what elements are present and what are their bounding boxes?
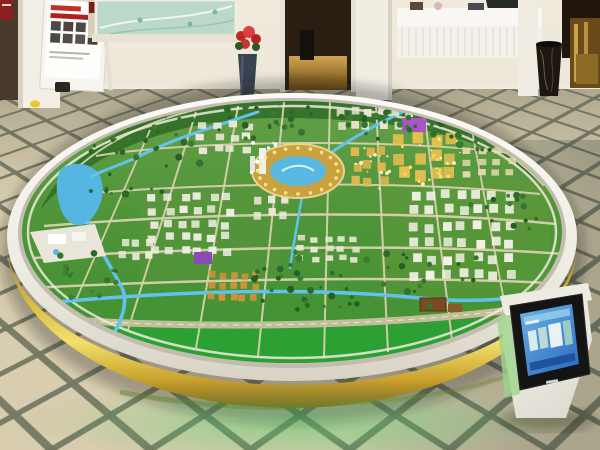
model-light bbox=[250, 171, 253, 174]
model-building bbox=[351, 121, 359, 129]
door-frame bbox=[351, 0, 356, 92]
model-building bbox=[219, 294, 226, 301]
model-tree bbox=[62, 270, 68, 276]
model-building bbox=[279, 212, 286, 220]
model-building bbox=[211, 194, 219, 201]
model-building bbox=[351, 147, 359, 156]
model-tree bbox=[63, 264, 69, 270]
stadium-light bbox=[320, 188, 324, 192]
stadium-light bbox=[334, 176, 338, 180]
model-building bbox=[442, 270, 451, 279]
model-light bbox=[374, 154, 377, 157]
model-tree bbox=[262, 267, 267, 272]
floor-object-dark bbox=[55, 82, 70, 92]
model-tree bbox=[373, 113, 379, 119]
model-tree bbox=[513, 126, 519, 132]
model-building bbox=[132, 253, 139, 260]
model-tree bbox=[430, 122, 434, 126]
model-tree bbox=[457, 262, 461, 266]
model-tree bbox=[348, 302, 352, 306]
brown-field bbox=[420, 298, 446, 311]
model-tree bbox=[166, 126, 170, 130]
model-tree bbox=[461, 278, 465, 282]
model-tree bbox=[181, 139, 188, 146]
plaza-building bbox=[72, 232, 86, 241]
model-tree bbox=[307, 287, 314, 294]
model-tree bbox=[110, 192, 113, 195]
model-tree bbox=[115, 151, 119, 155]
model-building bbox=[150, 222, 158, 229]
model-tree bbox=[421, 279, 426, 284]
model-tree bbox=[474, 255, 479, 260]
model-light bbox=[437, 172, 440, 175]
model-building bbox=[207, 235, 215, 242]
model-building bbox=[393, 134, 404, 145]
column-mid-shade bbox=[388, 0, 392, 100]
model-building bbox=[209, 282, 216, 289]
model-building bbox=[377, 163, 385, 172]
model-building bbox=[226, 209, 234, 216]
model-tree bbox=[177, 117, 181, 121]
model-tree bbox=[190, 117, 195, 122]
model-tree bbox=[361, 121, 368, 128]
model-building bbox=[504, 253, 513, 262]
model-tree bbox=[534, 217, 538, 221]
model-light bbox=[419, 144, 421, 146]
model-tree bbox=[122, 190, 129, 197]
stadium-light bbox=[284, 191, 288, 195]
model-building bbox=[352, 107, 360, 115]
model-building bbox=[148, 208, 156, 215]
model-tree bbox=[298, 129, 305, 136]
model-tree bbox=[289, 109, 294, 114]
stadium-light bbox=[296, 146, 300, 150]
model-building bbox=[441, 189, 450, 198]
model-light bbox=[261, 156, 264, 159]
model-tree bbox=[338, 114, 344, 120]
model-tree bbox=[251, 135, 256, 140]
model-building bbox=[491, 169, 499, 175]
model-building bbox=[426, 192, 435, 201]
white-tower bbox=[259, 148, 266, 174]
model-tree bbox=[68, 274, 72, 278]
column-left-shade bbox=[18, 0, 23, 108]
model-building bbox=[145, 252, 152, 259]
model-tree bbox=[188, 140, 194, 146]
model-tree bbox=[346, 112, 349, 115]
model-tree bbox=[345, 287, 348, 290]
bin-top bbox=[536, 41, 562, 47]
model-tree bbox=[527, 227, 531, 231]
model-building bbox=[377, 146, 385, 155]
wall-map-panel bbox=[92, 0, 240, 42]
model-light bbox=[363, 147, 365, 149]
model-tree bbox=[399, 263, 405, 269]
model-building bbox=[463, 160, 471, 166]
model-light bbox=[386, 155, 388, 157]
model-building bbox=[479, 159, 487, 165]
poster-photo bbox=[50, 33, 60, 43]
model-building bbox=[213, 123, 221, 130]
model-tree bbox=[175, 154, 182, 161]
model-light bbox=[432, 154, 435, 157]
model-tree bbox=[322, 305, 325, 308]
model-tree bbox=[516, 122, 523, 129]
model-building bbox=[229, 121, 237, 128]
model-building bbox=[326, 255, 333, 260]
column-right bbox=[518, 0, 538, 96]
model-tree bbox=[397, 121, 403, 127]
flower bbox=[251, 34, 261, 44]
stadium-light bbox=[329, 156, 333, 160]
model-light bbox=[401, 145, 404, 148]
model-building bbox=[352, 247, 359, 253]
model-tree bbox=[97, 293, 102, 298]
poster-photo bbox=[63, 22, 73, 32]
model-tree bbox=[277, 102, 281, 106]
model-tree bbox=[268, 126, 271, 129]
model-tree bbox=[261, 299, 265, 303]
model-building bbox=[336, 246, 343, 252]
stadium-light bbox=[264, 183, 268, 187]
model-light bbox=[428, 178, 431, 181]
model-building bbox=[198, 122, 206, 129]
model-building bbox=[363, 160, 371, 169]
model-light bbox=[388, 170, 391, 173]
stadium-light bbox=[336, 169, 340, 173]
model-tree bbox=[328, 293, 335, 300]
model-building bbox=[425, 224, 434, 233]
model-building bbox=[269, 208, 276, 216]
model-building bbox=[310, 247, 317, 253]
model-tree bbox=[270, 288, 274, 292]
model-building bbox=[381, 176, 389, 185]
model-building bbox=[409, 223, 418, 232]
model-tree bbox=[143, 139, 147, 143]
model-building bbox=[424, 205, 433, 214]
model-building bbox=[491, 222, 500, 231]
model-building bbox=[413, 253, 422, 262]
model-light bbox=[380, 171, 383, 174]
model-light bbox=[439, 175, 443, 179]
model-building bbox=[456, 253, 465, 262]
model-tree bbox=[515, 198, 520, 203]
model-building bbox=[207, 205, 215, 212]
model-building bbox=[225, 145, 233, 152]
model-tree bbox=[413, 290, 416, 293]
model-building bbox=[208, 220, 216, 227]
model-building bbox=[444, 238, 453, 247]
model-building bbox=[456, 221, 465, 230]
model-tree bbox=[91, 250, 98, 257]
model-building bbox=[458, 190, 467, 199]
model-building bbox=[399, 166, 410, 177]
stadium-light bbox=[273, 151, 277, 155]
stadium-light bbox=[309, 191, 313, 195]
model-tree bbox=[488, 148, 492, 152]
model-building bbox=[413, 132, 424, 143]
model-building bbox=[505, 169, 513, 175]
model-tree bbox=[290, 123, 295, 128]
model-building bbox=[250, 294, 257, 301]
door-frame bbox=[280, 0, 285, 92]
model-building bbox=[298, 235, 305, 241]
stadium-light bbox=[258, 162, 262, 166]
model-tree bbox=[413, 125, 417, 129]
model-light bbox=[274, 143, 278, 147]
model-tree bbox=[113, 280, 118, 285]
model-building bbox=[325, 237, 332, 243]
model-tree bbox=[251, 275, 258, 282]
model-building bbox=[182, 194, 190, 201]
model-light bbox=[409, 165, 413, 169]
model-building bbox=[339, 255, 346, 261]
model-tree bbox=[485, 205, 489, 209]
table-item bbox=[468, 3, 484, 10]
model-tree bbox=[476, 147, 480, 151]
model-tree bbox=[310, 112, 313, 115]
model-tree bbox=[339, 274, 342, 277]
stadium-light bbox=[256, 169, 260, 173]
map-dot bbox=[213, 10, 218, 15]
scene-graphics bbox=[0, 0, 600, 450]
purple-block bbox=[194, 252, 212, 264]
model-light bbox=[418, 180, 421, 183]
model-building bbox=[508, 158, 516, 164]
stadium-light bbox=[284, 147, 288, 151]
model-tree bbox=[287, 286, 294, 293]
model-building bbox=[457, 238, 466, 247]
model-building bbox=[352, 176, 360, 185]
model-building bbox=[425, 237, 434, 246]
model-building bbox=[146, 239, 153, 246]
model-tree bbox=[129, 187, 133, 191]
model-building bbox=[231, 272, 238, 279]
model-light bbox=[436, 167, 438, 169]
model-tree bbox=[277, 266, 284, 273]
model-light bbox=[355, 163, 357, 165]
model-building bbox=[410, 205, 419, 214]
model-tree bbox=[473, 139, 477, 143]
model-tree bbox=[282, 124, 288, 130]
model-building bbox=[268, 196, 275, 204]
model-building bbox=[222, 193, 230, 200]
model-light bbox=[404, 173, 407, 176]
model-tree bbox=[510, 223, 516, 229]
model-tree bbox=[427, 262, 432, 267]
model-light bbox=[436, 158, 439, 161]
model-tree bbox=[480, 147, 484, 151]
model-light bbox=[421, 182, 425, 186]
model-building bbox=[191, 221, 199, 228]
model-building bbox=[312, 257, 319, 263]
model-building bbox=[182, 246, 190, 253]
model-tree bbox=[354, 301, 360, 307]
model-tree bbox=[274, 120, 279, 125]
model-building bbox=[163, 194, 171, 201]
model-tree bbox=[254, 106, 258, 110]
leaves bbox=[235, 42, 243, 50]
model-building bbox=[215, 145, 223, 152]
model-tree bbox=[406, 115, 412, 121]
model-tree bbox=[364, 132, 368, 136]
model-tree bbox=[305, 303, 310, 308]
map-dot bbox=[188, 22, 193, 27]
model-building bbox=[252, 284, 259, 291]
model-light bbox=[452, 161, 456, 165]
model-light bbox=[456, 140, 458, 142]
model-building bbox=[463, 171, 471, 177]
model-building bbox=[254, 197, 261, 205]
leaves bbox=[252, 43, 260, 51]
table-item bbox=[410, 2, 423, 10]
model-tree bbox=[402, 253, 406, 257]
model-tree bbox=[383, 120, 387, 124]
model-building bbox=[463, 148, 471, 154]
model-tree bbox=[119, 149, 125, 155]
model-light bbox=[272, 142, 274, 144]
model-building bbox=[194, 207, 202, 214]
model-building bbox=[216, 134, 224, 141]
model-tree bbox=[449, 135, 453, 139]
model-building bbox=[489, 204, 498, 213]
doorway-gold-room bbox=[280, 0, 356, 92]
model-building bbox=[426, 271, 435, 280]
model-building bbox=[243, 147, 251, 154]
model-building bbox=[488, 272, 497, 281]
model-building bbox=[221, 222, 229, 229]
model-building bbox=[443, 256, 452, 265]
model-tree bbox=[243, 136, 247, 140]
model-building bbox=[180, 206, 188, 213]
stadium-light bbox=[258, 176, 262, 180]
model-tree bbox=[295, 255, 302, 262]
stadium-light bbox=[273, 188, 277, 192]
model-building bbox=[122, 239, 129, 246]
model-building bbox=[223, 249, 231, 256]
model-tree bbox=[339, 305, 342, 308]
model-building bbox=[393, 154, 404, 165]
model-light bbox=[378, 187, 380, 189]
model-building bbox=[471, 190, 480, 199]
model-building bbox=[443, 222, 452, 231]
model-tree bbox=[405, 256, 408, 259]
model-tree bbox=[111, 138, 115, 142]
model-tree bbox=[242, 103, 249, 110]
model-building bbox=[165, 247, 173, 254]
model-tree bbox=[289, 263, 293, 267]
model-tree bbox=[303, 299, 306, 302]
model-light bbox=[370, 161, 372, 163]
model-building bbox=[337, 236, 344, 242]
model-building bbox=[238, 295, 245, 302]
yellow-object-on-floor bbox=[30, 101, 40, 108]
model-building bbox=[164, 220, 172, 227]
model-tree bbox=[471, 278, 476, 283]
poster-photo bbox=[63, 34, 73, 44]
model-building bbox=[221, 232, 229, 239]
model-tree bbox=[521, 203, 527, 209]
model-light bbox=[459, 152, 461, 154]
model-tree bbox=[404, 288, 411, 295]
model-tree bbox=[133, 154, 139, 160]
gold-furniture bbox=[570, 18, 600, 88]
model-light bbox=[267, 146, 270, 149]
model-tree bbox=[507, 202, 512, 207]
model-tree bbox=[363, 115, 367, 119]
model-tree bbox=[104, 277, 110, 283]
model-tree bbox=[160, 189, 165, 194]
figure-in-doorway bbox=[300, 30, 314, 60]
model-building bbox=[409, 238, 418, 247]
gold-chair bbox=[576, 54, 598, 84]
stadium-light bbox=[309, 147, 313, 151]
model-tree bbox=[330, 271, 335, 276]
model-building bbox=[193, 233, 201, 240]
model-tree bbox=[57, 252, 63, 258]
model-tree bbox=[295, 307, 300, 312]
model-tree bbox=[407, 127, 412, 132]
model-building bbox=[166, 232, 174, 239]
model-building bbox=[132, 240, 139, 247]
model-building bbox=[476, 240, 485, 249]
model-tree bbox=[386, 266, 389, 269]
model-building bbox=[460, 268, 469, 277]
model-tree bbox=[276, 276, 281, 281]
model-tree bbox=[376, 137, 380, 141]
stadium-light bbox=[320, 151, 324, 155]
model-tree bbox=[89, 149, 95, 155]
model-building bbox=[193, 192, 201, 199]
stadium-light bbox=[334, 162, 338, 166]
model-light bbox=[432, 157, 434, 159]
exhibition-hall-photo bbox=[0, 0, 600, 450]
model-building bbox=[410, 272, 419, 281]
table-item bbox=[434, 2, 442, 10]
model-tree bbox=[153, 146, 158, 151]
model-tree bbox=[218, 128, 221, 131]
model-tree bbox=[363, 256, 370, 263]
model-tree bbox=[165, 164, 168, 167]
model-building bbox=[167, 208, 175, 215]
model-tree bbox=[152, 124, 157, 129]
model-tree bbox=[288, 116, 295, 123]
model-tree bbox=[380, 281, 386, 287]
model-tree bbox=[346, 122, 351, 127]
model-building bbox=[492, 159, 500, 165]
stadium-light bbox=[264, 156, 268, 160]
model-tree bbox=[242, 122, 249, 129]
model-building bbox=[182, 232, 190, 239]
poster-photo bbox=[75, 34, 85, 44]
map-dot bbox=[138, 18, 143, 23]
model-light bbox=[379, 155, 381, 157]
model-tree bbox=[175, 133, 178, 136]
model-tree bbox=[520, 194, 525, 199]
model-building bbox=[478, 169, 486, 175]
plaza-building bbox=[48, 234, 66, 244]
model-tree bbox=[108, 173, 112, 177]
poster-photo bbox=[76, 22, 86, 32]
stadium-light bbox=[329, 183, 333, 187]
model-building bbox=[296, 245, 303, 251]
model-building bbox=[445, 204, 454, 213]
marble-bin bbox=[536, 41, 562, 96]
model-tree bbox=[426, 303, 432, 309]
bin-body bbox=[536, 44, 562, 96]
model-tree bbox=[93, 144, 96, 147]
model-building bbox=[179, 221, 187, 228]
